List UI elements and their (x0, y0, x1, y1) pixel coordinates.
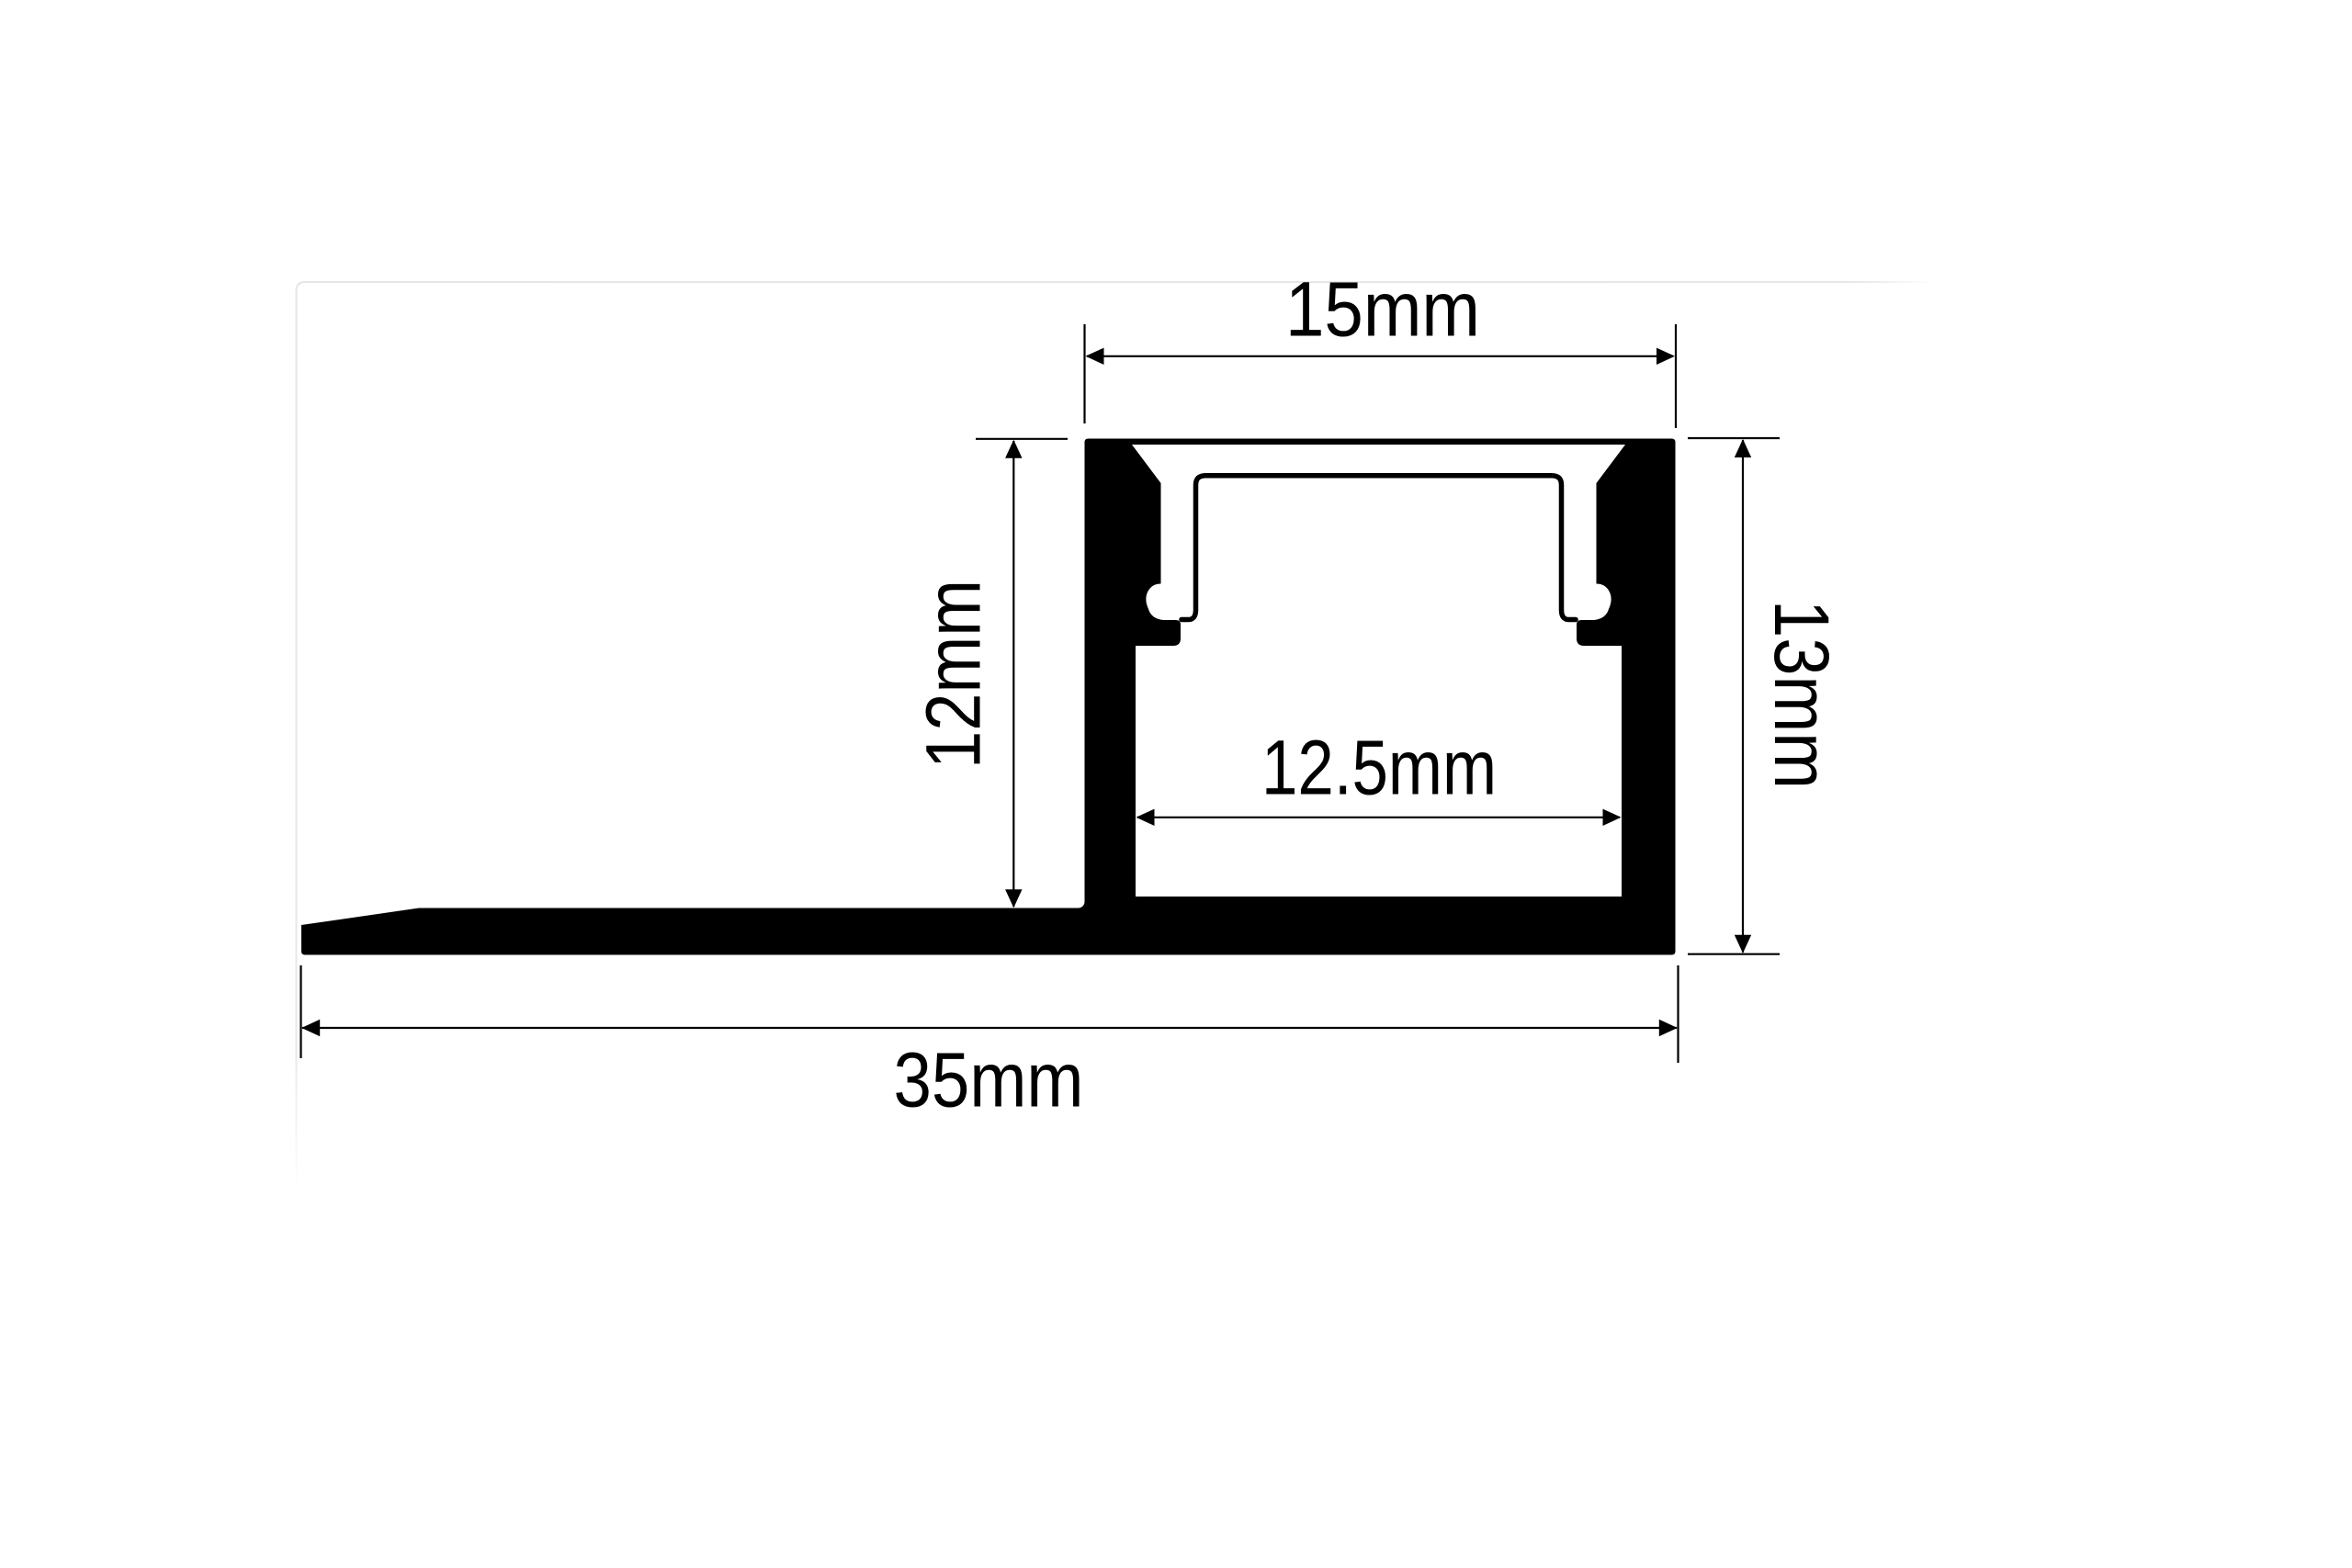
svg-text:12mm: 12mm (910, 580, 996, 769)
svg-text:35mm: 35mm (894, 1037, 1084, 1123)
svg-text:12.5mm: 12.5mm (1261, 725, 1497, 811)
svg-text:15mm: 15mm (1285, 266, 1480, 353)
svg-text:13mm: 13mm (1758, 600, 1845, 789)
